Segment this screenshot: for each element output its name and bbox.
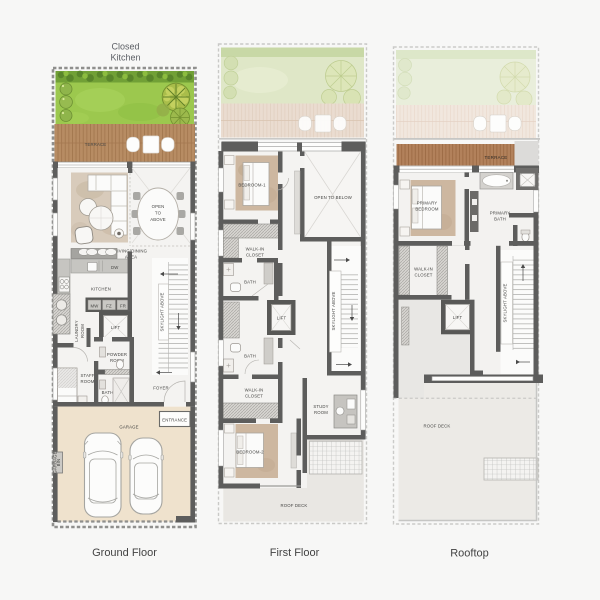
svg-text:ROOM: ROOM bbox=[314, 410, 328, 415]
svg-text:Rooftop: Rooftop bbox=[450, 548, 489, 560]
svg-text:SKYLIGHT ABOVE: SKYLIGHT ABOVE bbox=[160, 292, 165, 331]
svg-text:FOYER: FOYER bbox=[153, 386, 169, 391]
svg-text:WALK-IN: WALK-IN bbox=[414, 267, 433, 272]
svg-text:SKYLIGHT ABOVE: SKYLIGHT ABOVE bbox=[503, 283, 508, 322]
svg-text:STAFF: STAFF bbox=[80, 373, 94, 378]
svg-text:LAUNDRY: LAUNDRY bbox=[74, 320, 79, 342]
svg-text:First Floor: First Floor bbox=[270, 547, 320, 559]
svg-text:FZ: FZ bbox=[106, 304, 112, 309]
svg-text:LIFT: LIFT bbox=[453, 315, 463, 320]
svg-text:BATH: BATH bbox=[494, 217, 506, 222]
svg-text:ENTRANCE: ENTRANCE bbox=[162, 417, 187, 422]
svg-text:MW: MW bbox=[91, 304, 100, 309]
svg-text:TERRACE: TERRACE bbox=[85, 142, 107, 147]
svg-text:BIN: BIN bbox=[56, 459, 61, 467]
svg-text:BATH: BATH bbox=[102, 390, 114, 395]
svg-text:DW: DW bbox=[111, 265, 119, 270]
svg-text:TERRACE: TERRACE bbox=[484, 155, 507, 160]
svg-text:OPEN TO BELOW: OPEN TO BELOW bbox=[314, 195, 353, 200]
svg-text:LIFT: LIFT bbox=[277, 316, 287, 321]
svg-text:Ground Floor: Ground Floor bbox=[92, 547, 157, 559]
svg-text:PRIMARY: PRIMARY bbox=[417, 201, 438, 206]
svg-text:TO: TO bbox=[155, 211, 162, 216]
svg-text:LIFT: LIFT bbox=[111, 325, 121, 330]
svg-text:ROOF DECK: ROOF DECK bbox=[281, 503, 308, 508]
svg-text:PRIMARY: PRIMARY bbox=[490, 211, 511, 216]
svg-text:Kitchen: Kitchen bbox=[110, 53, 140, 63]
svg-text:BEDROOM: BEDROOM bbox=[415, 207, 439, 212]
svg-text:CLOSET: CLOSET bbox=[245, 394, 263, 399]
svg-text:BATH: BATH bbox=[244, 280, 256, 285]
svg-text:GARAGE: GARAGE bbox=[119, 425, 138, 430]
svg-text:STUDY: STUDY bbox=[313, 404, 328, 409]
svg-text:SKYLIGHT ABOVE: SKYLIGHT ABOVE bbox=[331, 291, 336, 330]
svg-text:ABOVE: ABOVE bbox=[150, 217, 166, 222]
svg-text:KITCHEN: KITCHEN bbox=[91, 287, 111, 292]
svg-text:POWDER: POWDER bbox=[107, 352, 127, 357]
svg-text:CLOSET: CLOSET bbox=[414, 273, 432, 278]
svg-text:CLOSET: CLOSET bbox=[246, 253, 264, 258]
svg-text:ROOM: ROOM bbox=[81, 379, 95, 384]
svg-text:BEDROOM-2: BEDROOM-2 bbox=[236, 450, 264, 455]
svg-text:FR: FR bbox=[120, 304, 126, 309]
svg-text:OPEN: OPEN bbox=[152, 204, 165, 209]
svg-text:WALK-IN: WALK-IN bbox=[245, 388, 264, 393]
svg-text:ROOM: ROOM bbox=[80, 324, 85, 338]
svg-text:BEDROOM-1: BEDROOM-1 bbox=[238, 183, 266, 188]
svg-text:ROOF DECK: ROOF DECK bbox=[424, 424, 451, 429]
svg-text:BATH: BATH bbox=[244, 354, 256, 359]
svg-text:WALK-IN: WALK-IN bbox=[246, 247, 265, 252]
svg-text:Closed: Closed bbox=[111, 42, 139, 52]
